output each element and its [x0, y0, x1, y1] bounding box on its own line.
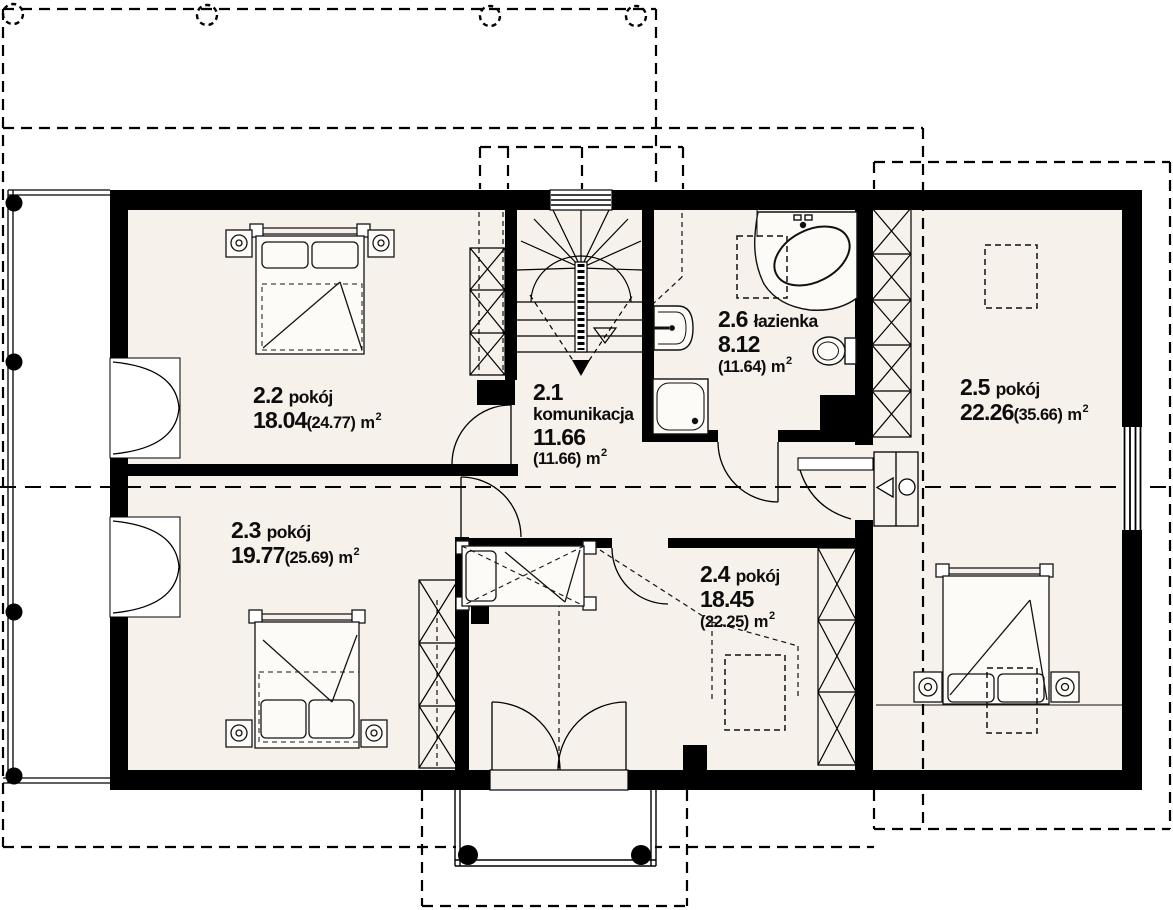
- room-number: 2.1: [533, 379, 563, 405]
- balcony-post: [631, 845, 651, 865]
- room-area-total: (25.69): [285, 549, 334, 567]
- nightstand: [226, 230, 252, 257]
- unit-exponent: 2: [769, 610, 774, 622]
- area-unit: m: [754, 613, 768, 631]
- room-number: 2.4: [700, 561, 730, 587]
- balcony-door-room22: [110, 358, 180, 458]
- unit-exponent: 2: [376, 411, 381, 423]
- area-unit: m: [586, 450, 600, 468]
- balcony-door-room23: [110, 517, 180, 617]
- washbasin: [654, 306, 693, 350]
- window-right: [1122, 427, 1142, 530]
- area-unit: m: [338, 549, 352, 567]
- nightstand: [368, 230, 394, 257]
- room-name: pokój: [736, 566, 780, 586]
- nightstand: [1051, 672, 1079, 702]
- nightstand: [914, 672, 942, 702]
- room-number: 2.5: [960, 374, 990, 400]
- room-area: 8.12: [718, 331, 760, 357]
- room-number: 2.2: [253, 382, 283, 408]
- nightstand: [226, 720, 252, 747]
- nightstand: [361, 720, 387, 747]
- room-area: 22.26: [960, 399, 1014, 425]
- room-area-total: (11.64): [718, 358, 766, 376]
- floor-plan: 2.2pokój 18.04(24.77)m2 2.3pokój 19.77(2…: [0, 0, 1173, 910]
- room-name: pokój: [996, 379, 1040, 399]
- room-area-total: (35.66): [1014, 406, 1063, 424]
- area-unit: m: [771, 358, 785, 376]
- balcony-post: [458, 845, 478, 865]
- unit-exponent: 2: [1083, 403, 1088, 415]
- area-unit: m: [360, 414, 374, 432]
- room-label-2-1: 2.1 komunikacja 11.66 (11.66)m2: [533, 380, 634, 469]
- balcony-post: [6, 604, 23, 621]
- room-number: 2.3: [231, 517, 261, 543]
- french-door-sill: [490, 770, 628, 790]
- room-area: 19.77: [231, 542, 285, 568]
- room-label-2-6: 2.6łazienka 8.12 (11.64)m2: [718, 307, 818, 376]
- room-label-2-4: 2.4pokój 18.45 (22.25)m2: [700, 562, 780, 631]
- stair-handrail: [575, 262, 587, 352]
- room-area: 18.04: [253, 407, 307, 433]
- chimney-marker: [874, 452, 918, 526]
- unit-exponent: 2: [354, 546, 359, 558]
- balcony-post: [6, 354, 23, 371]
- vent-circle-icon: [899, 479, 915, 495]
- room-name: pokój: [289, 387, 333, 407]
- roof-vent-circle-icons: [3, 4, 646, 26]
- room-name: łazienka: [754, 311, 818, 331]
- room-number: 2.6: [718, 306, 748, 332]
- balcony-post: [6, 768, 23, 785]
- room-area: 18.45: [700, 586, 754, 612]
- shower: [653, 379, 708, 434]
- balcony-post: [6, 195, 23, 212]
- unit-exponent: 2: [786, 355, 791, 367]
- room-label-2-2: 2.2pokój 18.04(24.77)m2: [253, 383, 381, 434]
- room-area-total: (22.25): [700, 613, 749, 631]
- single-bed-room24: [456, 541, 596, 610]
- unit-exponent: 2: [601, 447, 606, 459]
- balcony-bottom: [455, 790, 656, 868]
- area-unit: m: [1067, 406, 1081, 424]
- room-area: 11.66: [533, 424, 585, 450]
- toilet: [813, 337, 856, 365]
- room-name: komunikacja: [533, 404, 634, 424]
- room-label-2-5: 2.5pokój 22.26(35.66)m2: [960, 375, 1088, 426]
- room-area-total: (11.66): [533, 450, 581, 468]
- room-label-2-3: 2.3pokój 19.77(25.69)m2: [231, 518, 359, 569]
- window-top: [550, 190, 612, 210]
- room-area-total: (24.77): [307, 414, 356, 432]
- room-name: pokój: [267, 522, 311, 542]
